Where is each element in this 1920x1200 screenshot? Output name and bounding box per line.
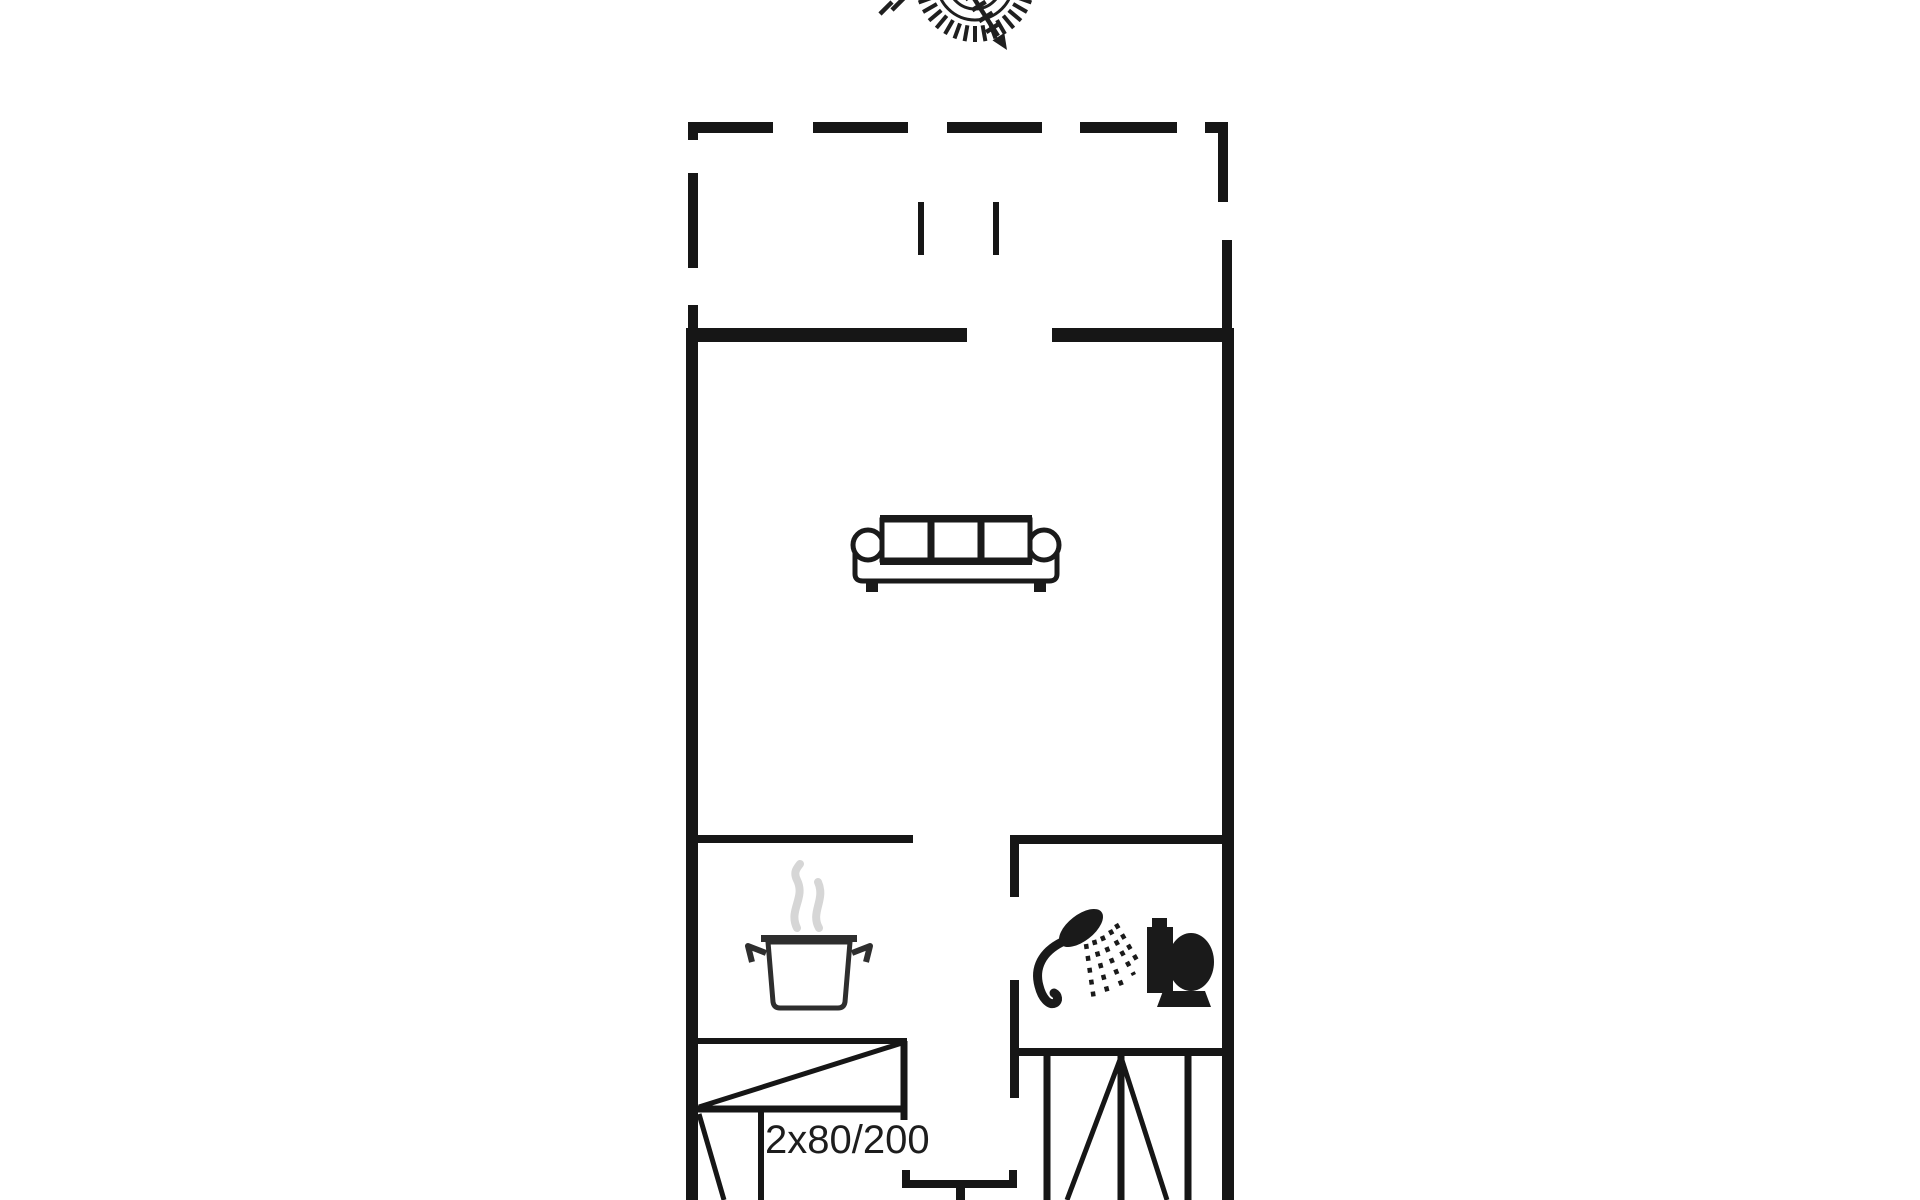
- terrace-dash: [1218, 122, 1228, 202]
- terrace-dash: [688, 305, 698, 330]
- sofa-arm: [1029, 530, 1059, 560]
- toilet-lid-notch: [1152, 918, 1167, 928]
- compass-rose-icon: [880, 0, 1031, 50]
- terrace-dash: [813, 122, 908, 133]
- door-stem: [956, 1186, 965, 1200]
- bed2-diagonal: [699, 1114, 724, 1200]
- sofa-foot: [1034, 581, 1046, 592]
- floor-plan-drawing: 2x80/200: [0, 0, 1920, 1200]
- terrace-dash: [1222, 240, 1232, 328]
- terrace-dash: [688, 173, 698, 268]
- floor-plan-page: 2x80/200: [0, 0, 1920, 1200]
- cooking-pot-icon: [748, 864, 870, 1008]
- kitchen-wall: [695, 835, 913, 843]
- wardrobe-diagonal: [1121, 1057, 1167, 1200]
- top-wall-right-segment: [1052, 328, 1234, 342]
- bed-size-label: 2x80/200: [765, 1118, 930, 1162]
- sofa-arm: [853, 530, 883, 560]
- sofa-cushion: [882, 520, 930, 560]
- bathroom-top-wall: [1012, 835, 1222, 844]
- left-wall: [686, 328, 698, 1200]
- terrace-dash: [1080, 122, 1177, 133]
- top-wall-left-segment: [686, 328, 967, 342]
- wardrobe-diagonal: [1067, 1057, 1121, 1200]
- right-wall: [1222, 328, 1234, 1200]
- wardrobe-symbol: [1047, 1055, 1188, 1200]
- sofa-cushion: [932, 520, 980, 560]
- pot-rim: [761, 935, 857, 942]
- pot-body: [768, 942, 850, 1008]
- terrace-door-marks: [918, 202, 999, 255]
- pot-handle: [748, 946, 766, 962]
- bathroom-left-wall-upper: [1010, 835, 1019, 897]
- sofa-foot: [866, 581, 878, 592]
- door-mark: [918, 202, 924, 255]
- door-mark: [993, 202, 999, 255]
- door-jamb: [1009, 1170, 1017, 1188]
- sofa-cushion: [982, 520, 1030, 560]
- double-bed-symbol: 2x80/200: [695, 1041, 930, 1200]
- terrace-dashed-outline: [688, 122, 1232, 330]
- shower-spray: [1086, 924, 1138, 1000]
- bathroom-bottom-wall: [1014, 1048, 1222, 1056]
- shower-hose: [1038, 942, 1062, 1004]
- toilet-base: [1157, 991, 1211, 1007]
- terrace-dash: [688, 122, 773, 133]
- toilet-bowl: [1168, 933, 1214, 991]
- door-symbol: [902, 1170, 1017, 1200]
- terrace-dash: [947, 122, 1042, 133]
- sofa-icon: [853, 518, 1059, 592]
- door-jamb: [902, 1170, 910, 1188]
- exterior-walls: [686, 328, 1234, 1200]
- bed-diagonal: [699, 1043, 902, 1107]
- hand-shower-icon: [1038, 902, 1138, 1004]
- pot-body-group: [748, 935, 870, 1008]
- pot-handle: [852, 946, 870, 962]
- bathroom-left-wall-lower: [1010, 980, 1019, 1098]
- steam-icon: [794, 864, 820, 928]
- toilet-icon: [1147, 918, 1214, 1007]
- terrace-dash: [688, 122, 698, 140]
